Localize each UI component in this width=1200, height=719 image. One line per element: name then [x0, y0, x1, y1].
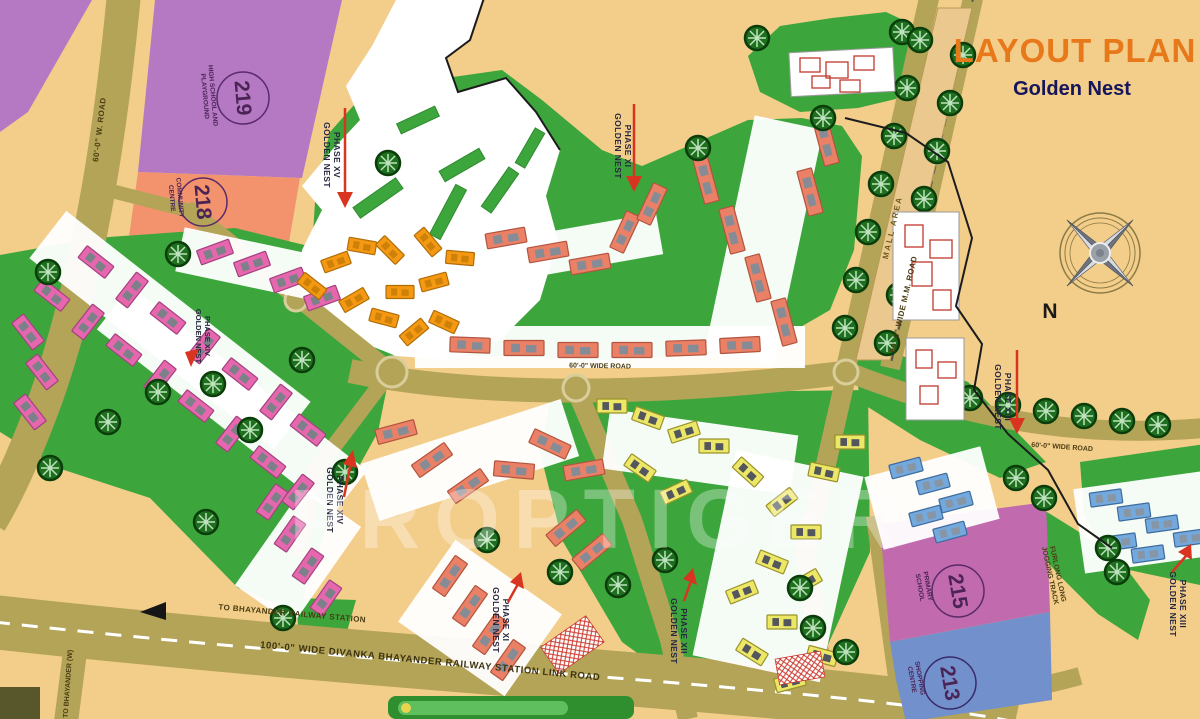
- phase-marker-xiii-far-right: GOLDEN NESTPHASE XIII: [1168, 571, 1188, 637]
- tree-icon: [686, 136, 710, 160]
- parcel-219-number: 219: [230, 80, 256, 117]
- bottom-green-pill: [398, 701, 568, 715]
- tree-icon: [745, 26, 769, 50]
- building: [612, 343, 652, 358]
- phase-marker-xiii-right: GOLDEN NESTPHASE XIII: [993, 364, 1013, 430]
- tree-icon: [912, 187, 936, 211]
- tree-icon: [811, 106, 835, 130]
- svg-text:PHASE XII: PHASE XII: [679, 608, 689, 654]
- map-canvas: 219 HIGH SCHOOL AND PLAYGROUND 218 COMMU…: [0, 0, 1200, 719]
- svg-text:PHASE XI: PHASE XI: [623, 125, 633, 168]
- building: [558, 343, 598, 358]
- watermark: PROPTIGER: [290, 472, 911, 566]
- tree-icon: [606, 573, 630, 597]
- tree-icon: [290, 348, 314, 372]
- svg-text:PHASE XIV: PHASE XIV: [203, 316, 212, 356]
- parcel-218-number: 218: [190, 184, 216, 221]
- page-title: LAYOUT PLAN: [954, 32, 1197, 69]
- tree-icon: [36, 260, 60, 284]
- tree-icon: [938, 91, 962, 115]
- layout-plan-map: 219 HIGH SCHOOL AND PLAYGROUND 218 COMMU…: [0, 0, 1200, 719]
- tree-icon: [201, 372, 225, 396]
- tree-icon: [801, 616, 825, 640]
- svg-text:GOLDEN NEST: GOLDEN NEST: [1168, 571, 1178, 637]
- tree-icon: [38, 456, 62, 480]
- svg-text:GOLDEN NEST: GOLDEN NEST: [993, 364, 1003, 430]
- svg-text:GOLDEN NEST: GOLDEN NEST: [669, 598, 679, 664]
- tree-icon: [1105, 560, 1129, 584]
- bottom-bar-dot: [401, 703, 411, 713]
- svg-text:PHASE XV: PHASE XV: [332, 132, 342, 178]
- building: [720, 336, 761, 353]
- page-subtitle: Golden Nest: [1013, 78, 1131, 100]
- internal-road-label: 60'-0" WIDE ROAD: [569, 362, 631, 370]
- tree-icon: [833, 316, 857, 340]
- tree-icon: [856, 220, 880, 244]
- tree-icon: [895, 76, 919, 100]
- tree-icon: [788, 576, 812, 600]
- tree-icon: [1032, 486, 1056, 510]
- svg-text:PHASE XIII: PHASE XIII: [1003, 373, 1013, 421]
- corner-block: [0, 687, 40, 719]
- tree-icon: [166, 242, 190, 266]
- building: [666, 340, 706, 356]
- tree-icon: [376, 151, 400, 175]
- tree-icon: [1110, 409, 1134, 433]
- north-label: N: [1042, 300, 1057, 323]
- svg-text:PHASE XI: PHASE XI: [501, 599, 511, 642]
- svg-text:GOLDEN NEST: GOLDEN NEST: [613, 113, 623, 179]
- svg-text:PHASE XIII: PHASE XIII: [1178, 580, 1188, 628]
- tree-icon: [194, 510, 218, 534]
- building: [597, 399, 627, 413]
- building: [699, 439, 729, 453]
- tree-icon: [908, 28, 932, 52]
- phase-marker-xiv-left: GOLDEN NESTPHASE XIV: [194, 309, 212, 364]
- building: [504, 341, 544, 356]
- tree-icon: [869, 172, 893, 196]
- tree-icon: [1146, 413, 1170, 437]
- tree-icon: [1034, 399, 1058, 423]
- building: [835, 435, 865, 449]
- svg-text:GOLDEN NEST: GOLDEN NEST: [491, 587, 501, 653]
- tree-icon: [834, 640, 858, 664]
- tree-icon: [1004, 466, 1028, 490]
- tree-icon: [96, 410, 120, 434]
- building: [450, 337, 490, 353]
- tree-icon: [1072, 404, 1096, 428]
- tree-icon: [844, 268, 868, 292]
- building: [767, 615, 797, 629]
- building: [445, 250, 474, 265]
- building: [386, 286, 414, 299]
- svg-text:GOLDEN NEST: GOLDEN NEST: [322, 122, 332, 188]
- tree-icon: [146, 380, 170, 404]
- tree-icon: [238, 418, 262, 442]
